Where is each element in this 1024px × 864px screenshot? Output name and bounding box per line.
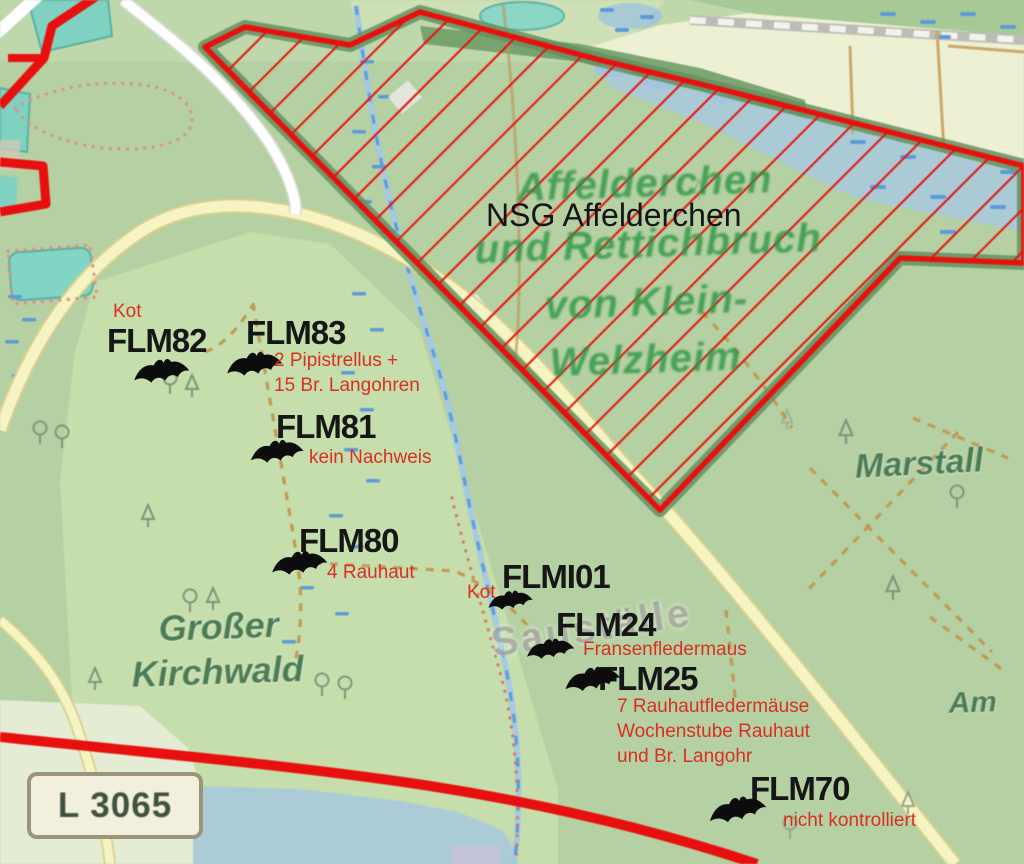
label-overlay: Affelderchen und Rettichbruch von Klein-… bbox=[0, 0, 1024, 864]
place-label-grosser: Großer bbox=[158, 604, 279, 650]
bat-icon[interactable] bbox=[246, 433, 306, 468]
marker-note: nicht kontrolliert bbox=[783, 808, 916, 833]
nsg-region-label: NSG Affelderchen bbox=[486, 197, 742, 234]
place-label-kirchwald: Kirchwald bbox=[131, 648, 304, 696]
marker-note: 7 Rauhautfledermäuse bbox=[617, 694, 809, 719]
bat-icon[interactable] bbox=[704, 788, 771, 829]
reserve-ghost-name-line3: von Klein- bbox=[544, 277, 749, 329]
road-number-sign: L 3065 bbox=[27, 772, 203, 839]
marker-note: Wochenstube Rauhaut bbox=[617, 719, 810, 744]
marker-note: Fransenfledermaus bbox=[583, 637, 747, 662]
marker-note: 15 Br. Langohren bbox=[274, 373, 420, 398]
marker-note: Kot bbox=[113, 299, 142, 324]
marker-note: und Br. Langohr bbox=[617, 744, 752, 769]
reserve-ghost-name-line4: Welzheim bbox=[549, 334, 742, 386]
marker-label: FLM82 bbox=[107, 324, 207, 357]
marker-note: Kot bbox=[467, 580, 496, 605]
road-number-text: L 3065 bbox=[58, 786, 172, 826]
place-label-am: Am bbox=[948, 685, 998, 721]
place-label-marstall: Marstall bbox=[854, 441, 984, 487]
bat-icon[interactable] bbox=[267, 544, 330, 580]
marker-note: 4 Rauhaut bbox=[327, 560, 415, 585]
marker-note: 2 Pipistrellus + bbox=[274, 348, 398, 373]
marker-label: FLM83 bbox=[246, 316, 346, 349]
map-canvas[interactable]: Affelderchen und Rettichbruch von Klein-… bbox=[0, 0, 1024, 864]
marker-note: kein Nachweis bbox=[309, 445, 432, 470]
